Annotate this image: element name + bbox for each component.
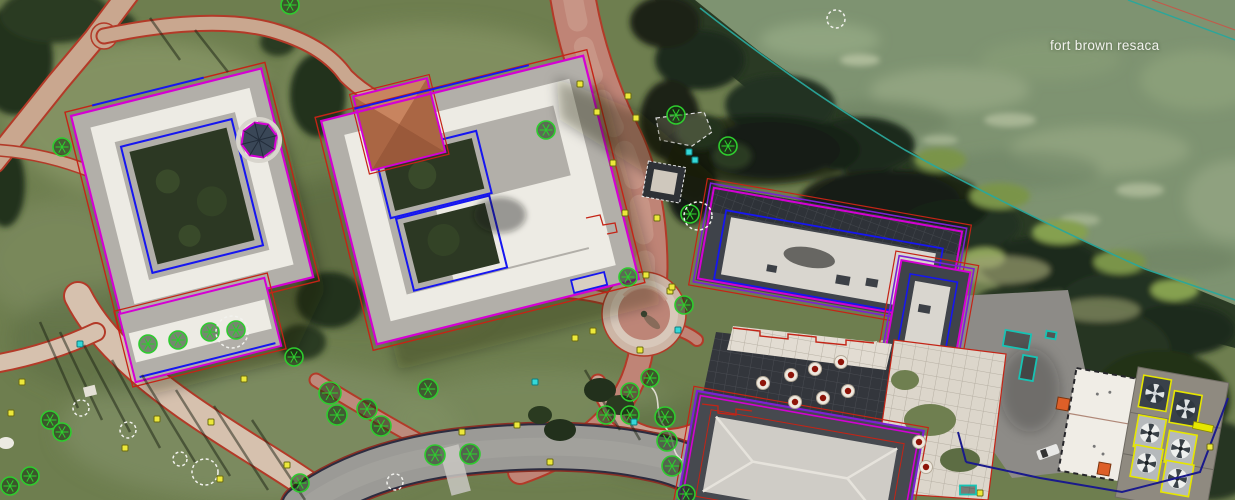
teal-utility-marker (1019, 355, 1037, 381)
red-ring-marker (913, 436, 926, 449)
proposed-tree-marker (387, 474, 403, 490)
yellow-point-marker (284, 462, 290, 468)
cyan-point-marker (692, 157, 698, 163)
tree-marker (291, 474, 309, 492)
teal-utility-marker (960, 486, 976, 495)
yellow-point-marker (654, 215, 660, 221)
tree-marker (53, 138, 71, 156)
red-ring-marker (920, 461, 933, 474)
red-ring-marker (835, 356, 848, 369)
yellow-point-marker (977, 490, 983, 496)
yellow-point-marker (8, 410, 14, 416)
teal-utility-marker (1045, 331, 1056, 340)
tree-marker (537, 121, 555, 139)
cyan-point-marker (532, 379, 538, 385)
red-ring-marker (785, 369, 798, 382)
tree-marker (719, 137, 737, 155)
yellow-point-marker (547, 459, 553, 465)
yellow-point-marker (643, 272, 649, 278)
yellow-point-marker (514, 422, 520, 428)
yellow-point-marker (610, 160, 616, 166)
tree-marker (371, 416, 391, 436)
orange-corner-marker (1056, 397, 1070, 411)
tree-marker (327, 405, 347, 425)
yellow-point-marker (572, 335, 578, 341)
yellow-point-marker (154, 416, 160, 422)
yellow-point-marker (241, 376, 247, 382)
tree-marker (677, 485, 695, 500)
yellow-point-marker (459, 429, 465, 435)
tree-marker (641, 369, 659, 387)
cyan-point-marker (675, 327, 681, 333)
tree-marker (169, 331, 187, 349)
yellow-point-marker (633, 115, 639, 121)
cyan-point-marker (631, 419, 637, 425)
red-ring-marker (809, 363, 822, 376)
yellow-point-marker (590, 328, 596, 334)
red-ring-marker (789, 396, 802, 409)
yellow-point-marker (637, 347, 643, 353)
yellow-point-marker (625, 93, 631, 99)
tree-marker (597, 406, 615, 424)
proposed-tree-marker (173, 452, 187, 466)
yellow-point-marker (217, 476, 223, 482)
water-label: fort brown resaca (1050, 38, 1159, 53)
red-ring-marker (842, 385, 855, 398)
tree-marker (655, 407, 675, 427)
yellow-point-marker (208, 419, 214, 425)
tree-marker (657, 431, 677, 451)
yellow-point-marker (1207, 444, 1213, 450)
cyan-point-marker (77, 341, 83, 347)
tree-marker (21, 467, 39, 485)
proposed-tree-marker (120, 422, 136, 438)
yellow-tag-marker (1192, 421, 1213, 432)
cyan-point-marker (686, 149, 692, 155)
tree-marker (285, 348, 303, 366)
orange-corner-marker (1097, 462, 1111, 476)
red-ring-marker (817, 392, 830, 405)
tree-marker (1, 477, 19, 495)
tree-marker (621, 383, 639, 401)
red-ring-marker (757, 377, 770, 390)
tree-marker (675, 296, 693, 314)
tree-marker (667, 106, 685, 124)
tree-marker (281, 0, 299, 14)
aerial-map-canvas[interactable]: fort brown resaca (0, 0, 1235, 500)
yellow-point-marker (669, 284, 675, 290)
proposed-tree-marker (827, 10, 845, 28)
tree-marker (619, 268, 637, 286)
tree-marker (201, 323, 219, 341)
yellow-point-marker (122, 445, 128, 451)
tree-marker (139, 335, 157, 353)
yellow-point-marker (19, 379, 25, 385)
tree-marker (357, 399, 377, 419)
teal-utility-marker (1003, 330, 1031, 350)
tree-marker (418, 379, 438, 399)
tree-marker (53, 423, 71, 441)
tree-marker (319, 382, 341, 404)
yellow-point-marker (577, 81, 583, 87)
yellow-point-marker (622, 210, 628, 216)
tree-marker (460, 444, 480, 464)
tree-marker (425, 445, 445, 465)
tree-marker (227, 321, 245, 339)
map-markers (0, 0, 1235, 500)
proposed-tree-marker (192, 459, 218, 485)
proposed-tree-marker (73, 400, 89, 416)
yellow-point-marker (594, 109, 600, 115)
tree-marker (662, 456, 682, 476)
